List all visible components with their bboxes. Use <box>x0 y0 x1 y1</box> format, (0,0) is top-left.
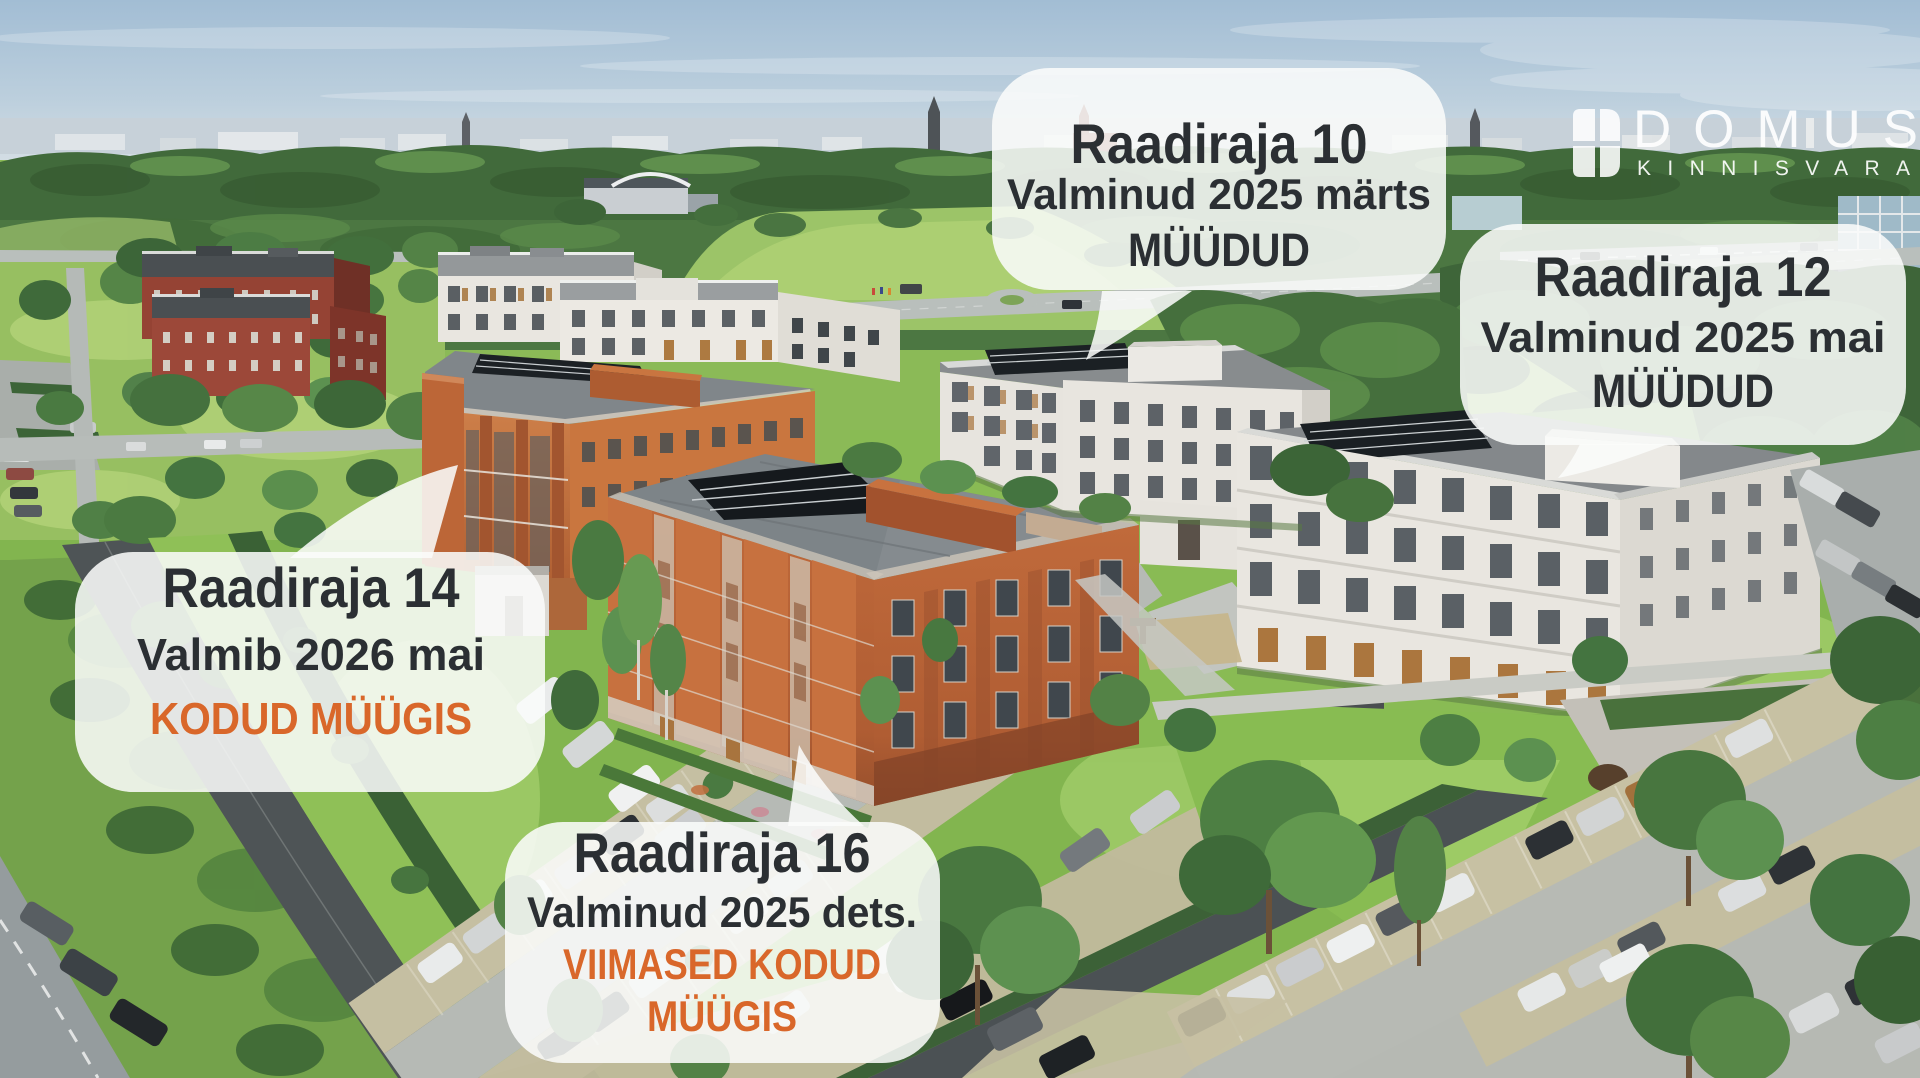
svg-text:MÜÜDUD: MÜÜDUD <box>1128 223 1310 276</box>
svg-text:KODUD MÜÜGIS: KODUD MÜÜGIS <box>150 693 472 744</box>
svg-text:VIIMASED KODUD: VIIMASED KODUD <box>563 941 881 989</box>
svg-text:Raadiraja 16: Raadiraja 16 <box>574 821 871 884</box>
svg-text:MÜÜDUD: MÜÜDUD <box>1592 364 1774 417</box>
svg-text:MÜÜGIS: MÜÜGIS <box>647 993 797 1041</box>
svg-text:Valmib 2026 mai: Valmib 2026 mai <box>137 629 485 680</box>
svg-text:Raadiraja 12: Raadiraja 12 <box>1535 245 1832 308</box>
svg-text:Valminud 2025 dets.: Valminud 2025 dets. <box>527 889 917 937</box>
svg-text:Raadiraja 14: Raadiraja 14 <box>163 556 460 619</box>
svg-text:Valminud 2025 mai: Valminud 2025 mai <box>1481 314 1886 362</box>
svg-text:Valminud 2025 märts: Valminud 2025 märts <box>1007 171 1431 219</box>
svg-text:Raadiraja 10: Raadiraja 10 <box>1071 112 1368 175</box>
